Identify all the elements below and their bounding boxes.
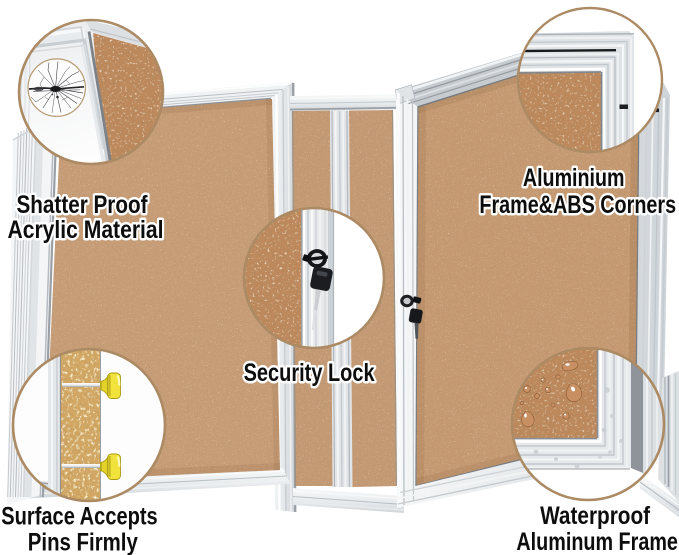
svg-text:Aluminium: Aluminium: [523, 164, 625, 192]
svg-text:Shatter Proof: Shatter Proof: [17, 191, 149, 219]
svg-text:Surface Accepts: Surface Accepts: [1, 503, 157, 531]
svg-text:Security Lock: Security Lock: [244, 359, 375, 387]
svg-text:Frame&ABS Corners: Frame&ABS Corners: [479, 191, 676, 219]
svg-text:Acrylic Material: Acrylic Material: [8, 216, 164, 244]
svg-text:Pins Firmly: Pins Firmly: [28, 529, 138, 555]
svg-text:Waterproof: Waterproof: [540, 502, 651, 530]
svg-text:Aluminum Frame: Aluminum Frame: [516, 528, 678, 555]
